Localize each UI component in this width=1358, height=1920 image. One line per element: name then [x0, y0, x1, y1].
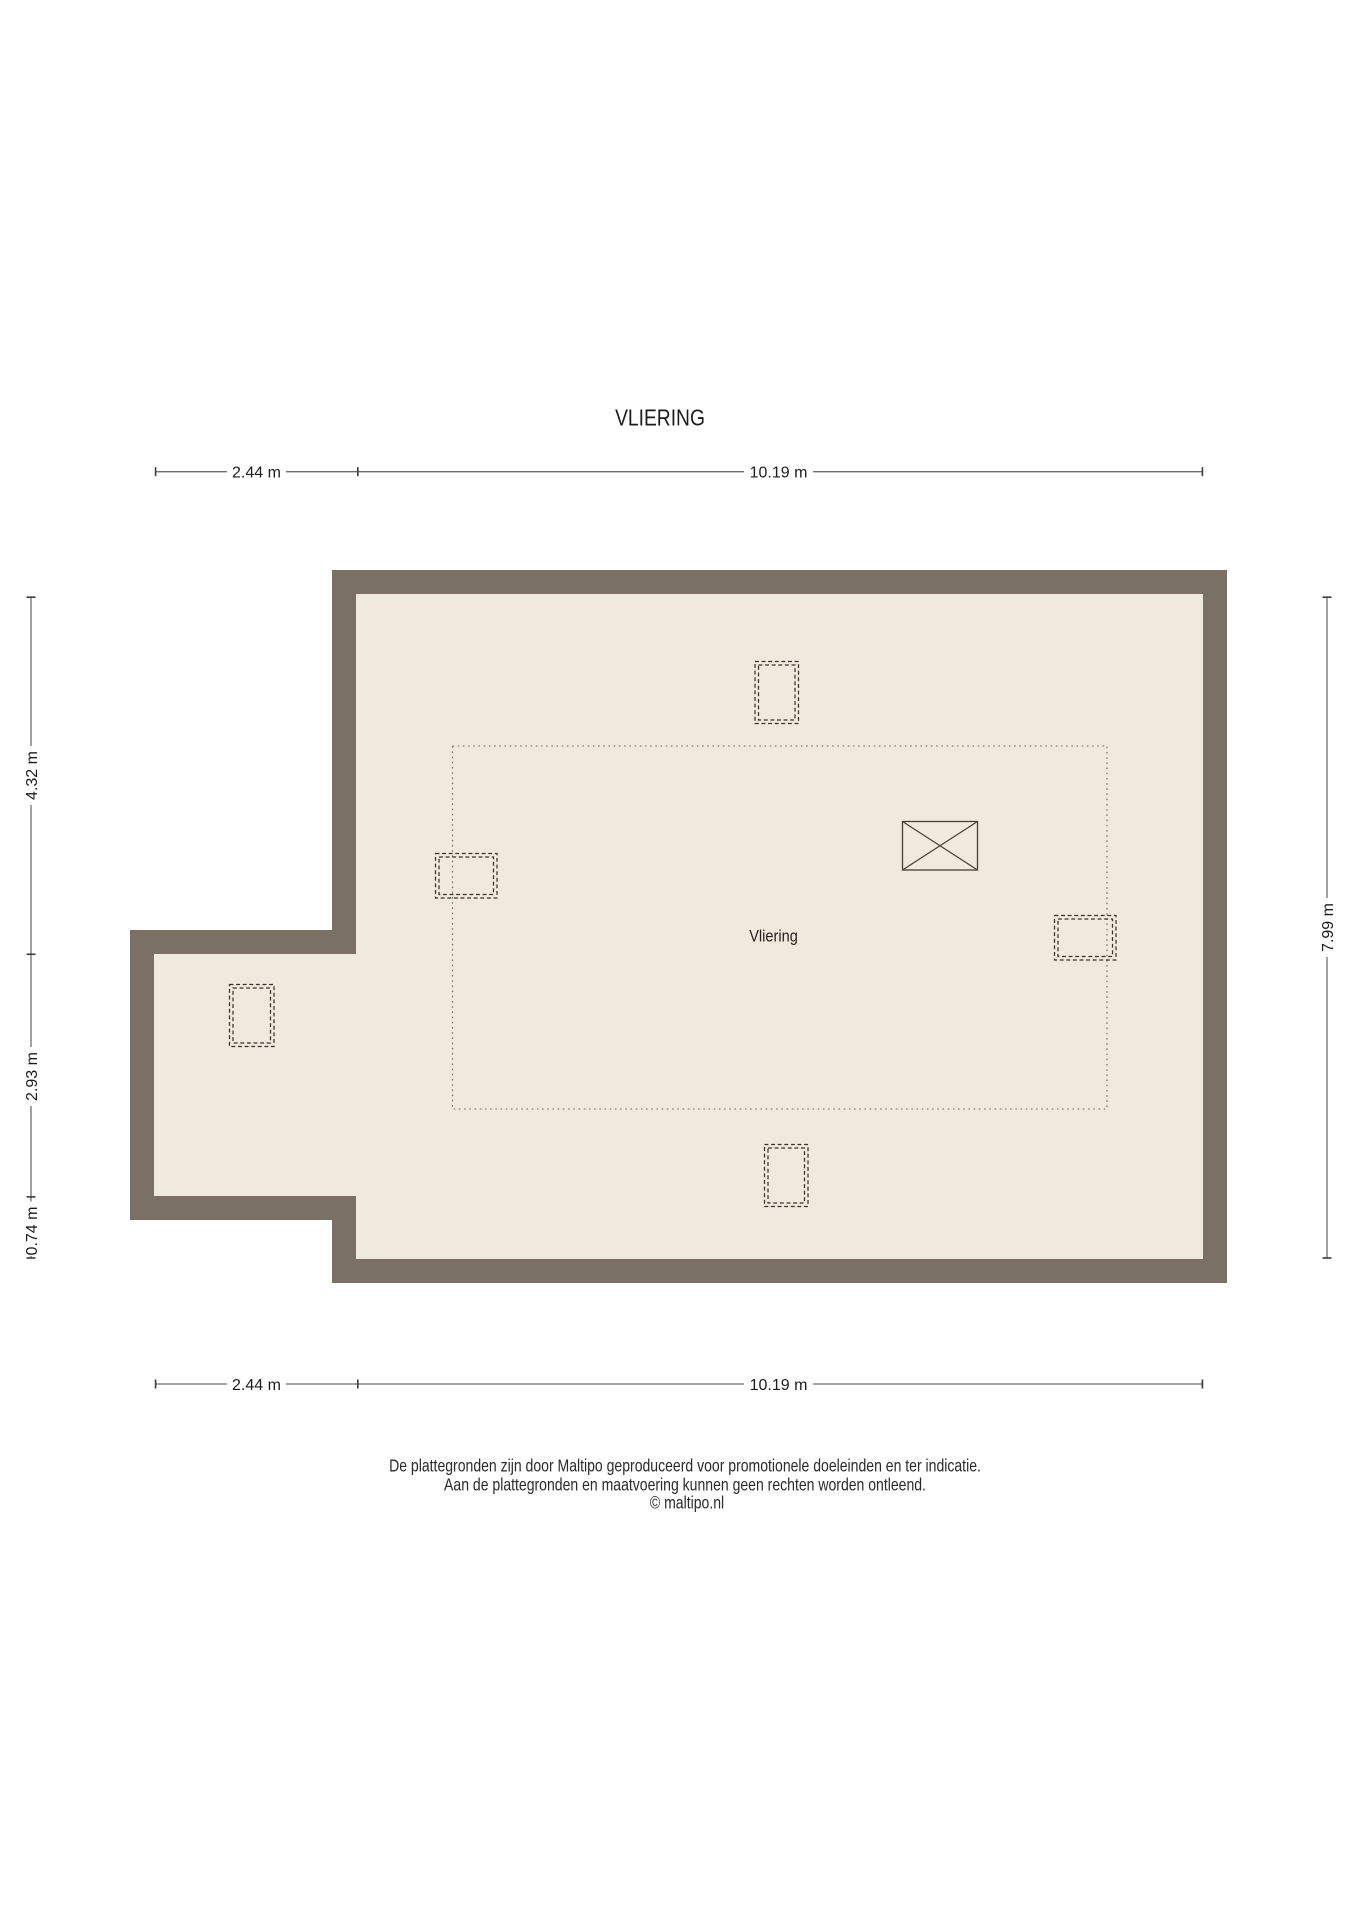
svg-text:4.32 m: 4.32 m: [24, 751, 41, 800]
svg-text:2.93 m: 2.93 m: [24, 1052, 41, 1101]
svg-text:2.44 m: 2.44 m: [232, 1377, 281, 1394]
svg-text:© maltipo.nl: © maltipo.nl: [650, 1493, 724, 1513]
svg-text:10.19 m: 10.19 m: [750, 1377, 808, 1394]
svg-text:0.74 m: 0.74 m: [24, 1207, 41, 1256]
svg-text:De plattegronden zijn door Mal: De plattegronden zijn door Maltipo gepro…: [389, 1456, 981, 1476]
svg-text:VLIERING: VLIERING: [615, 405, 705, 431]
svg-text:2.44 m: 2.44 m: [232, 465, 281, 482]
svg-text:10.19 m: 10.19 m: [750, 465, 808, 482]
svg-text:7.99 m: 7.99 m: [1320, 903, 1337, 952]
svg-text:Vliering: Vliering: [749, 928, 798, 946]
